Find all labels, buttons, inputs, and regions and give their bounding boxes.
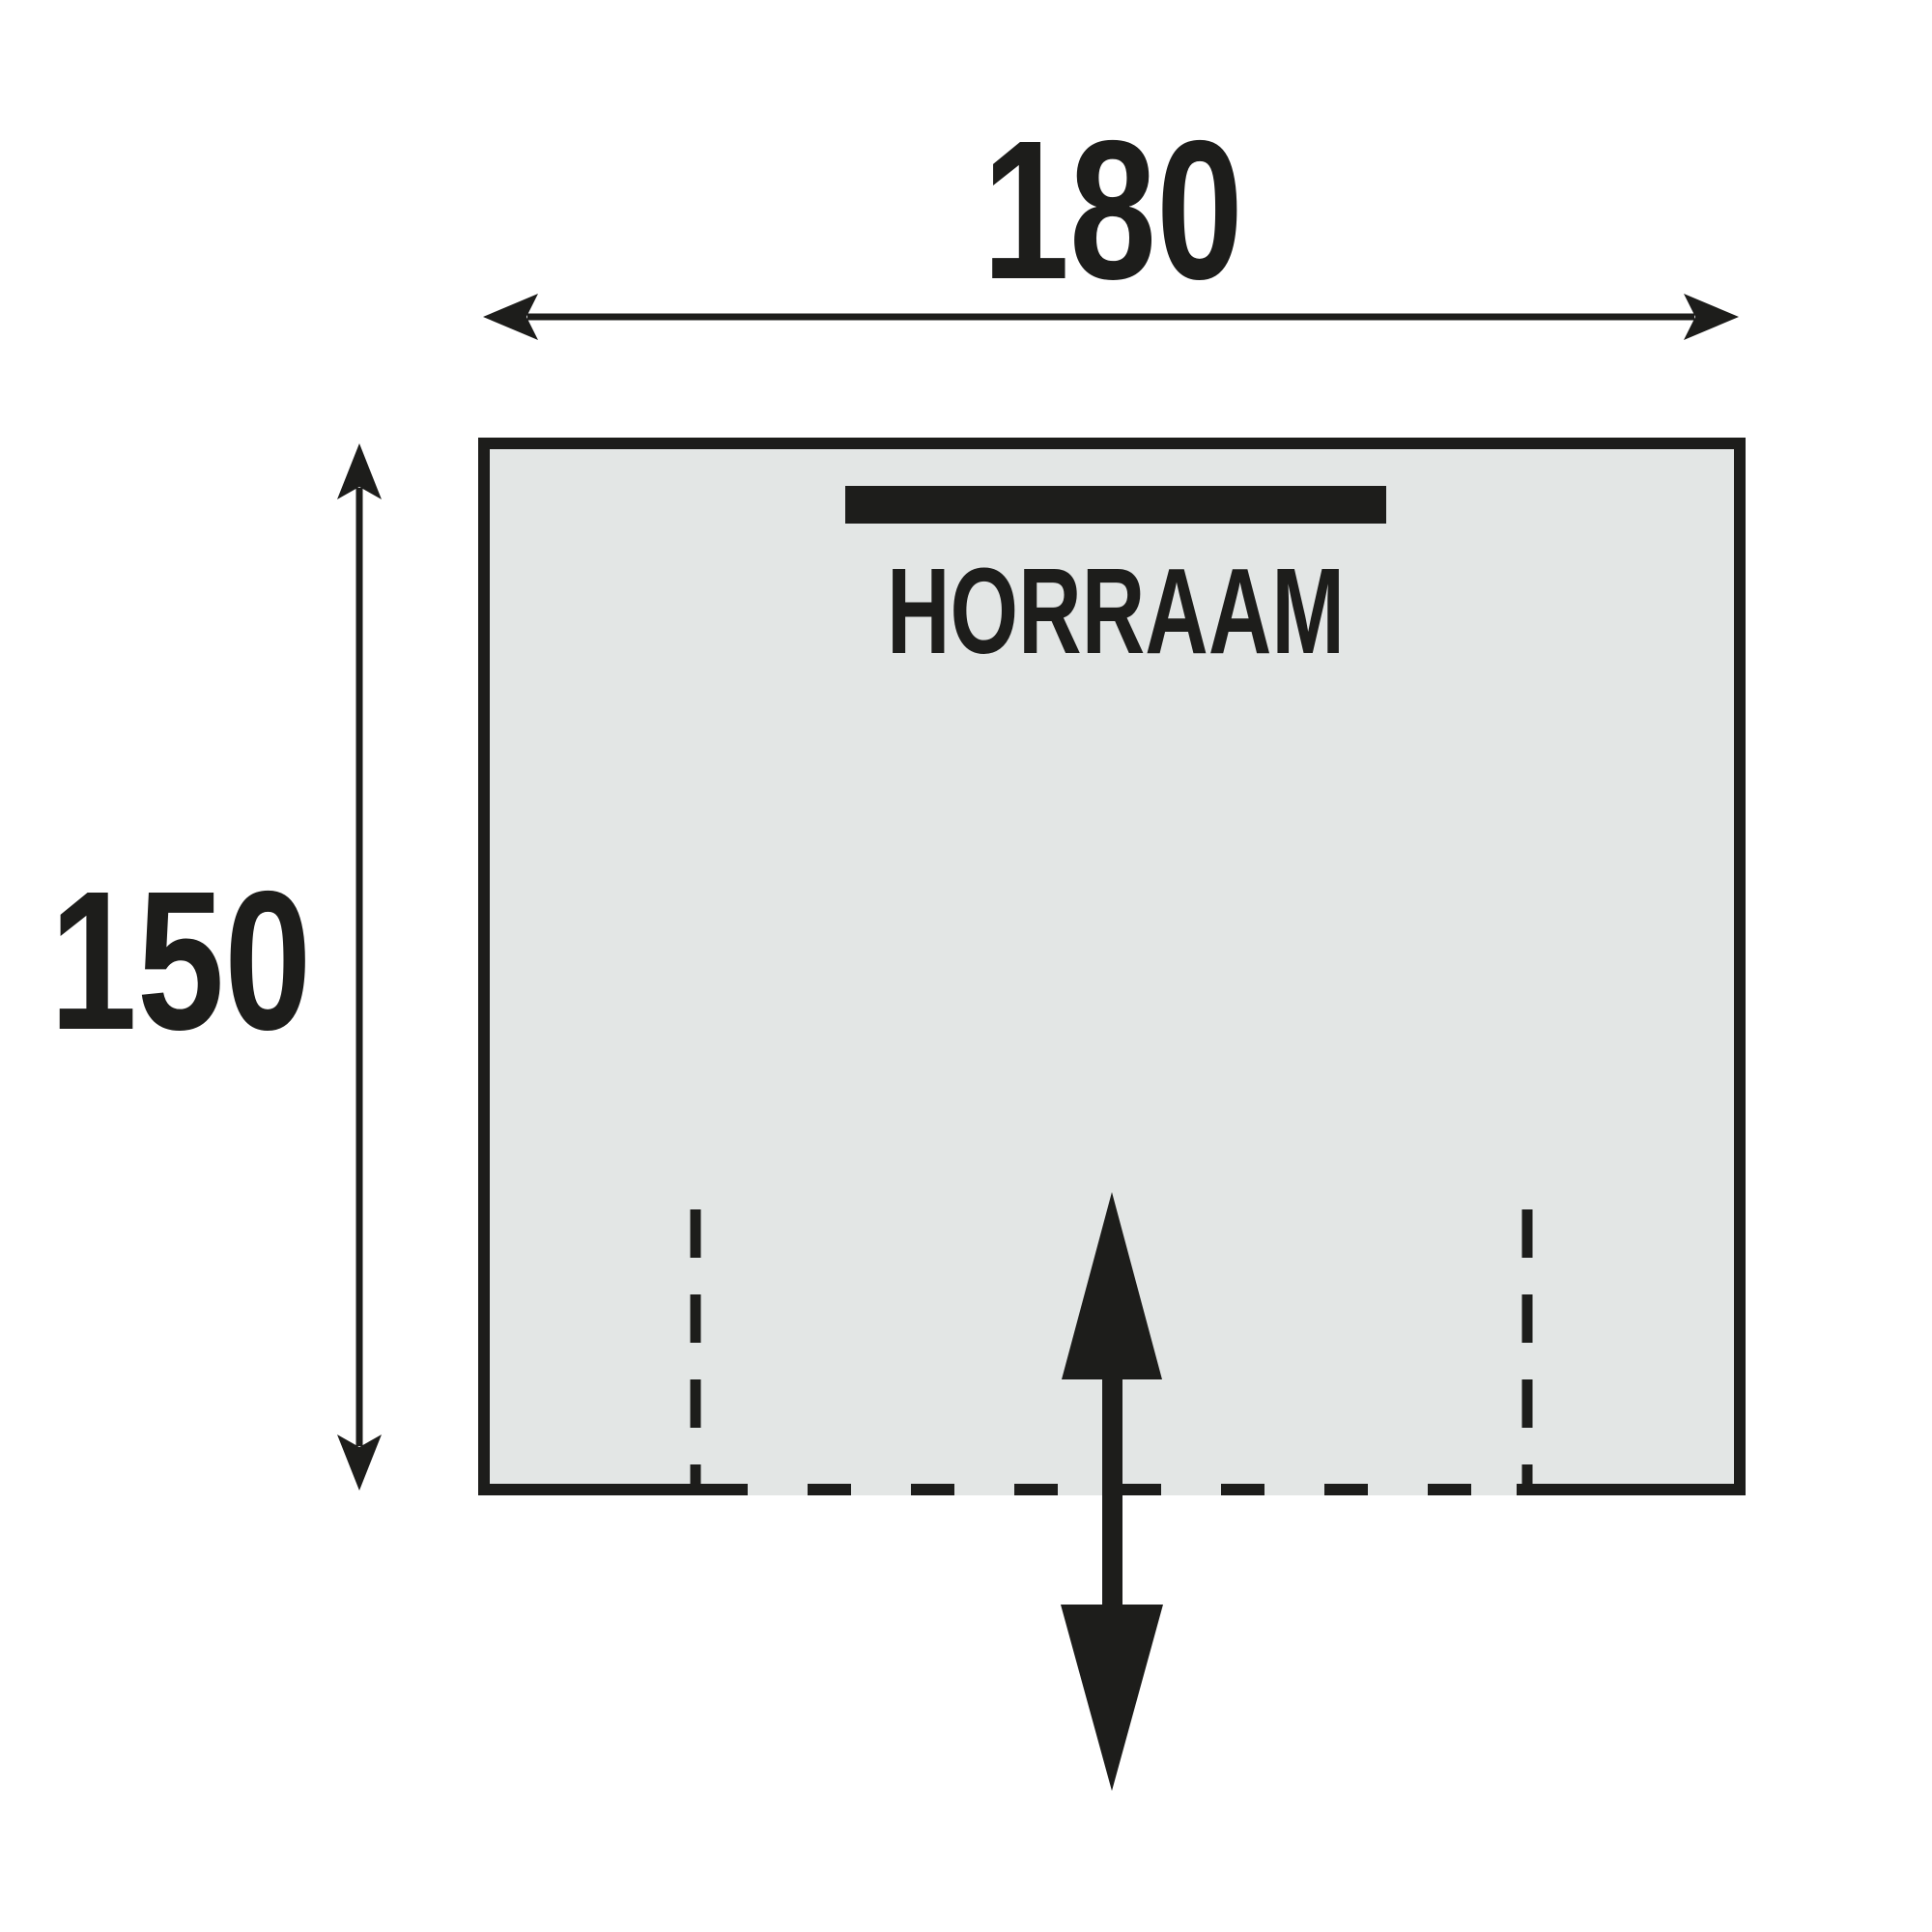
entrance-arrow-shaft xyxy=(1102,1377,1122,1608)
width-dimension-label: 180 xyxy=(982,99,1243,321)
room-label: HORRAAM xyxy=(887,543,1345,679)
entrance-arrowhead-down-icon xyxy=(1061,1605,1163,1791)
height-dimension-arrow xyxy=(337,443,382,1491)
floorplan-diagram: HORRAAM 180 150 xyxy=(0,0,1932,1932)
window-marker-bar xyxy=(845,486,1386,524)
height-dimension-label: 150 xyxy=(50,850,312,1071)
diagram-canvas: HORRAAM 180 150 xyxy=(0,0,1932,1932)
